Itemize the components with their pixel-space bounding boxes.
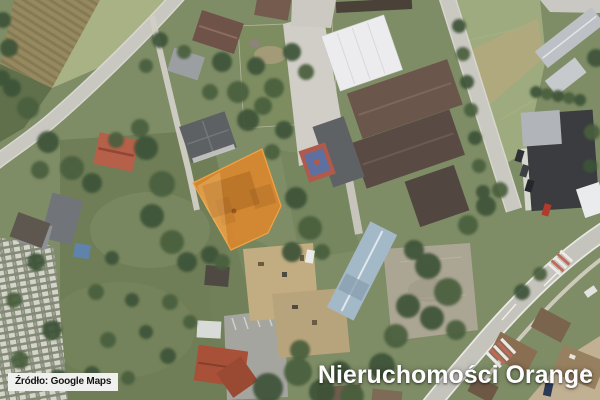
blue-tarp-shed xyxy=(73,243,91,260)
brand-watermark: Nieruchomości Orange xyxy=(318,361,593,390)
satellite-map xyxy=(0,0,600,400)
map-source-label: Źródło: Google Maps xyxy=(8,373,118,391)
listing-map-image: Źródło: Google Maps Nieruchomości Orange xyxy=(0,0,600,400)
